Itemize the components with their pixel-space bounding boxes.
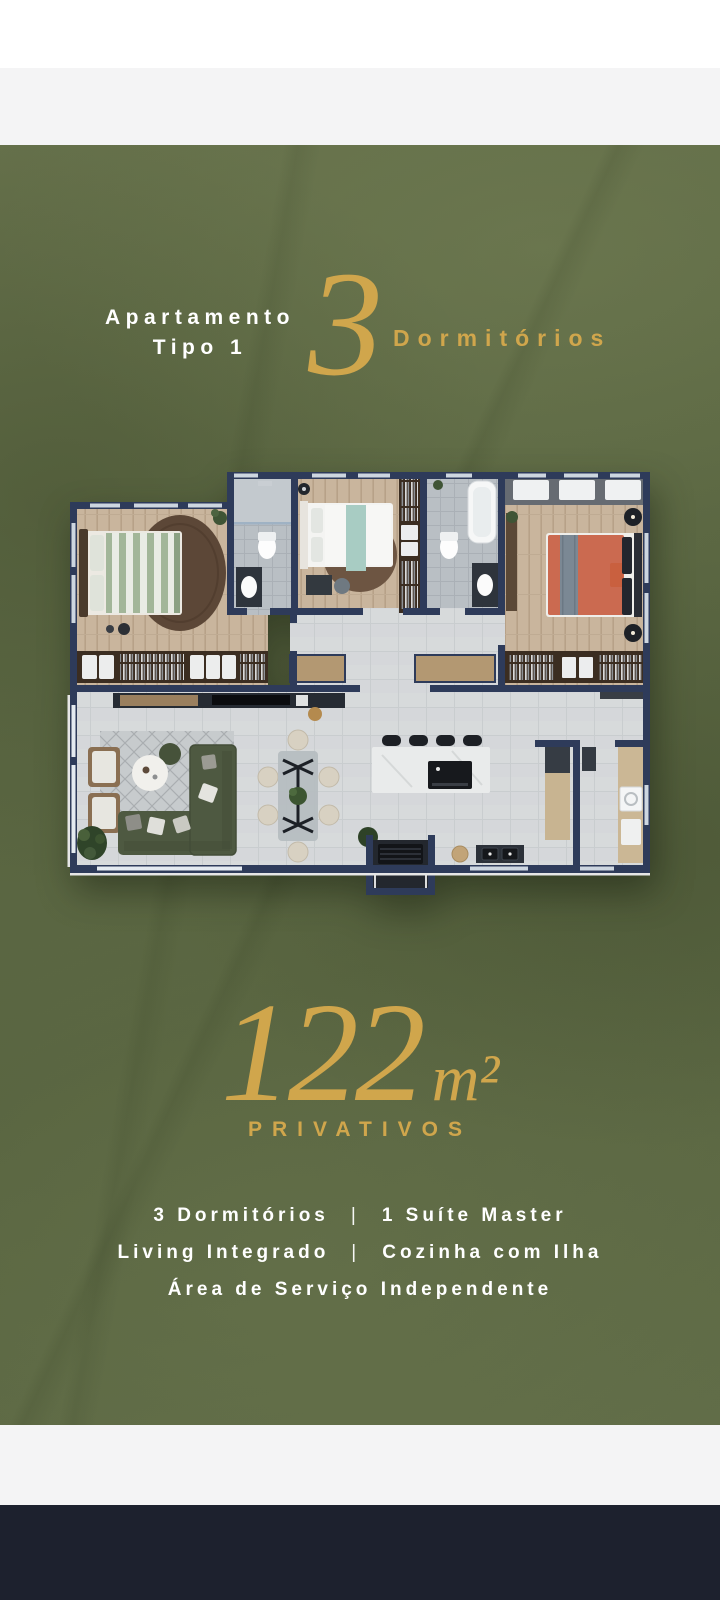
apartment-type-line1: Apartamento [72, 303, 328, 333]
feature-row-3: Área de Serviço Independente [0, 1271, 720, 1308]
feature-row-1: 3 Dormitórios|1 Suíte Master [0, 1197, 720, 1234]
hall-bench-right [415, 655, 495, 682]
bbq-area [373, 840, 428, 889]
olive-panel: Apartamento Tipo 1 3 Dormitórios [0, 145, 720, 1425]
bottom-gray-bar [0, 1425, 720, 1505]
area-value-row: 122m² [0, 981, 720, 1123]
bedroom-1-stool [118, 623, 130, 635]
coffee-table [132, 755, 168, 791]
bedroom-2-desk [306, 575, 332, 595]
feature-bedrooms: 3 Dormitórios [153, 1205, 329, 1226]
floor-plan [62, 455, 652, 897]
pantry-appliance [545, 747, 570, 773]
washing-machine [620, 787, 642, 811]
bedroom-2-wardrobe [399, 475, 420, 613]
dining-chair [288, 842, 308, 862]
floor-plant [77, 826, 107, 860]
poster-page: Apartamento Tipo 1 3 Dormitórios [0, 0, 720, 1600]
dining-chair [258, 767, 278, 787]
sink-counter [476, 845, 524, 863]
features-list: 3 Dormitórios|1 Suíte Master Living Inte… [0, 1197, 720, 1308]
feature-row-2: Living Integrado|Cozinha com Ilha [0, 1234, 720, 1271]
dining-chair [288, 730, 308, 750]
tv [212, 695, 290, 705]
area-unit: m² [432, 1042, 499, 1115]
area-label: PRIVATIVOS [0, 1118, 720, 1142]
island-stool [436, 735, 455, 746]
island-stool [409, 735, 428, 746]
island-stool [382, 735, 401, 746]
master-wardrobe [505, 651, 645, 683]
feature-separator: | [351, 1242, 360, 1263]
master-bed [546, 533, 642, 617]
dining-chair [319, 805, 339, 825]
top-white-bar [0, 0, 720, 68]
master-plant [506, 511, 518, 523]
bottom-navy-bar [0, 1505, 720, 1600]
bedroom-2-chair [334, 578, 350, 594]
apartment-type-line2: Tipo 1 [72, 333, 328, 363]
armchair-1 [88, 747, 120, 787]
service-cabinet [582, 747, 596, 771]
sink [241, 576, 257, 598]
apartment-type-label: Apartamento Tipo 1 [72, 303, 328, 363]
shower-glass [234, 522, 291, 525]
bedroom-1-wardrobe [77, 651, 268, 683]
plant [433, 480, 443, 490]
bedroom-2-bed [300, 501, 393, 571]
feature-suite: 1 Suíte Master [382, 1205, 567, 1226]
feature-separator: | [351, 1205, 360, 1226]
bedroom-1-bed [79, 529, 182, 617]
bedroom-count-number: 3 [308, 249, 383, 399]
master-dresser [506, 513, 517, 611]
tv-console [113, 693, 345, 708]
hall-bench-left [290, 655, 345, 682]
sink [477, 574, 493, 596]
island-stool [463, 735, 482, 746]
area-value: 122 [221, 973, 422, 1131]
dining-chair [258, 805, 278, 825]
feature-living: Living Integrado [118, 1242, 330, 1263]
towel [621, 819, 641, 845]
bedroom-count-label: Dormitórios [393, 325, 611, 352]
dining-chair [319, 767, 339, 787]
feature-kitchen: Cozinha com Ilha [382, 1242, 602, 1263]
desk-chair-gold [308, 707, 322, 721]
top-gray-bar [0, 68, 720, 145]
feature-service: Área de Serviço Independente [168, 1279, 552, 1300]
wood-stool [452, 846, 468, 862]
